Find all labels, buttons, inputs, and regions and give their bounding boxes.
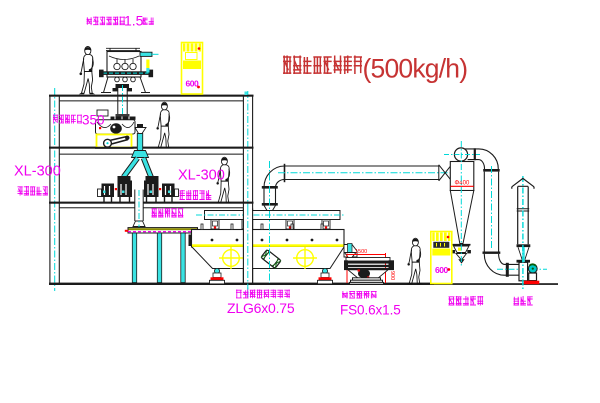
svg-text:FS0.6x1.5: FS0.6x1.5	[340, 303, 401, 318]
svg-text:350: 350	[82, 113, 105, 128]
svg-text:Φ400: Φ400	[455, 180, 470, 186]
svg-text:1.5: 1.5	[124, 13, 144, 29]
svg-text:(500kg/h): (500kg/h)	[363, 54, 468, 84]
svg-text:600: 600	[186, 79, 199, 89]
svg-text:600: 600	[435, 265, 448, 275]
svg-text:XL-300: XL-300	[14, 164, 61, 180]
svg-text:XL-300: XL-300	[178, 168, 225, 184]
svg-text:1500: 1500	[355, 249, 367, 255]
svg-text:ZLG6x0.75: ZLG6x0.75	[227, 300, 295, 316]
svg-text:900: 900	[389, 271, 395, 280]
